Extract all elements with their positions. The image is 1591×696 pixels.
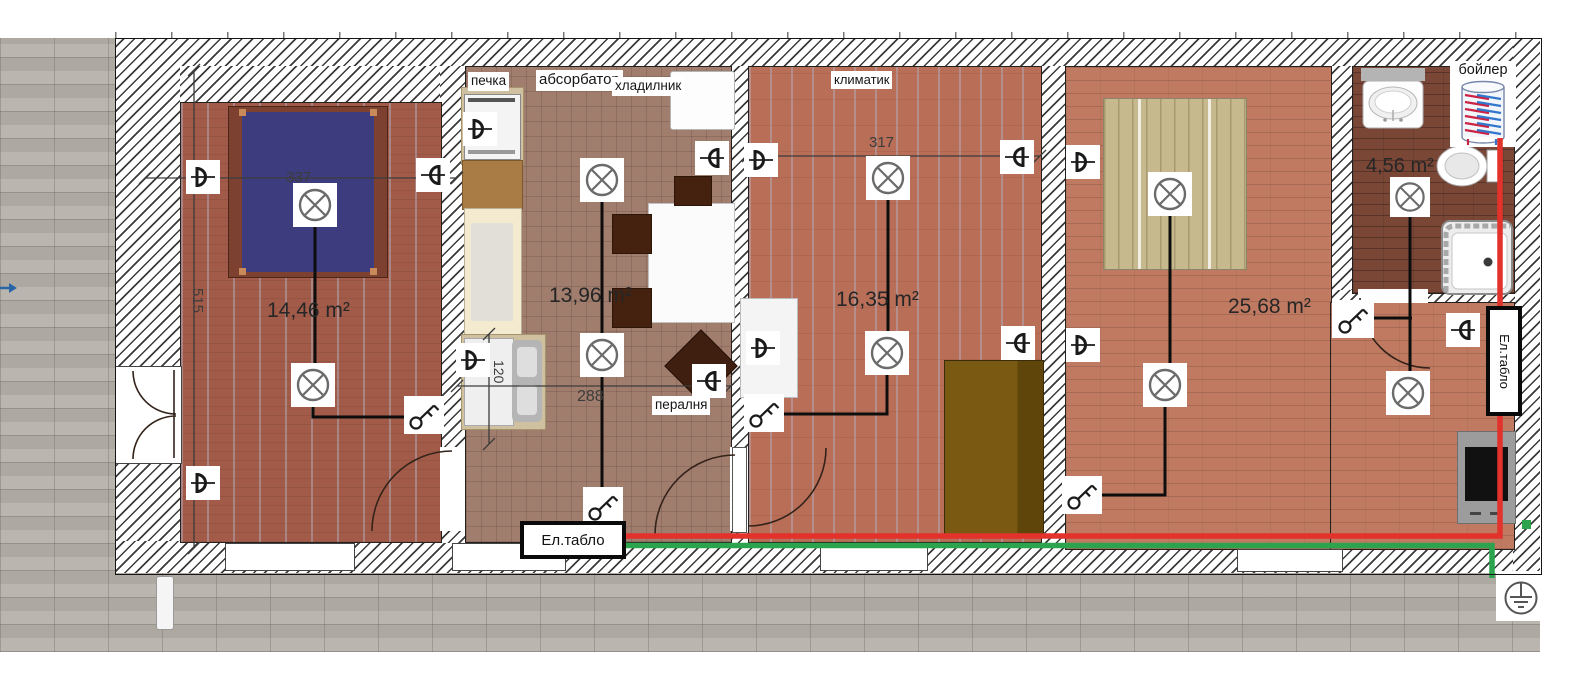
switch-icon[interactable] [583, 487, 623, 525]
window-bedroom[interactable] [225, 543, 355, 571]
kitchen-sink-basins[interactable] [512, 340, 542, 422]
kitchen-table[interactable] [648, 203, 735, 323]
earth-node-dot [1522, 520, 1531, 529]
electrical-panel-kitchen[interactable]: Ел.табло [520, 521, 626, 559]
ceiling-light-icon[interactable] [865, 331, 909, 375]
entrance-door[interactable] [115, 366, 182, 464]
dim-house-depth: 515 [189, 288, 206, 313]
wall-light-icon[interactable] [746, 331, 780, 365]
outdoor-radiator [156, 576, 174, 630]
washer-label[interactable]: пералня [652, 396, 710, 415]
dim-living-width: 317 [869, 134, 894, 151]
wardrobe[interactable] [944, 360, 1044, 535]
dim-counter-depth: 120 [491, 360, 507, 383]
wall-light-icon[interactable] [744, 143, 778, 177]
panel-label: Ел.табло [541, 532, 604, 549]
window-living[interactable] [820, 543, 928, 571]
area-living: 16,35 m² [836, 288, 919, 312]
wall-top [115, 38, 1540, 68]
wall-light-icon[interactable] [695, 141, 729, 175]
boiler-label: бойлер [1458, 61, 1507, 79]
bathroom-sink[interactable] [1361, 68, 1425, 130]
shower[interactable] [1441, 220, 1513, 295]
stove-label[interactable]: печка [468, 72, 509, 91]
switch-icon[interactable] [1332, 300, 1374, 338]
hood-label[interactable]: абсорбатор [536, 70, 623, 91]
door-leaf-kitchen[interactable] [732, 447, 747, 533]
dim-kitchen-width: 288 [577, 388, 604, 406]
wall-stub-1 [440, 531, 465, 543]
chair[interactable] [612, 214, 652, 254]
wall-light-icon[interactable] [186, 160, 220, 194]
floor-plan-canvas[interactable]: бойлер [0, 0, 1591, 696]
kitchen-cabinet[interactable] [462, 160, 523, 210]
area-bedroom: 14,46 m² [267, 299, 350, 323]
wall-light-icon[interactable] [186, 466, 220, 500]
boiler-icon [1455, 79, 1511, 145]
ceiling-light-icon[interactable] [580, 158, 624, 202]
ground-electrode[interactable] [1496, 571, 1546, 621]
ceiling-light-icon[interactable] [1386, 371, 1430, 415]
fridge-label[interactable]: хладилник [612, 77, 684, 96]
ceiling-light-icon[interactable] [580, 333, 624, 377]
window-big-room[interactable] [1237, 549, 1343, 572]
switch-icon[interactable] [404, 396, 444, 434]
wall-light-icon[interactable] [692, 364, 726, 398]
switch-icon[interactable] [1062, 476, 1102, 514]
boiler[interactable]: бойлер [1450, 61, 1516, 147]
wall-light-icon[interactable] [1066, 145, 1100, 179]
wall-light-icon[interactable] [1446, 313, 1480, 347]
area-kitchen: 13,96 m² [549, 284, 632, 308]
ceiling-light-icon[interactable] [1143, 363, 1187, 407]
chair[interactable] [674, 176, 712, 206]
panel-label: Ел.табло [1497, 334, 1512, 389]
toilet[interactable] [1435, 143, 1503, 189]
wall-light-icon[interactable] [463, 112, 497, 146]
fireplace[interactable] [1457, 431, 1516, 524]
kitchen-counter[interactable] [464, 208, 522, 336]
area-bathroom: 4,56 m² [1366, 155, 1434, 178]
area-big-room: 25,68 m² [1228, 295, 1311, 319]
door-opening-bedroom[interactable] [440, 447, 465, 531]
ceiling-light-icon[interactable] [293, 183, 337, 227]
wall-bathroom-left [1330, 66, 1352, 292]
switch-icon[interactable] [744, 394, 784, 432]
ceiling-light-icon[interactable] [866, 156, 910, 200]
ceiling-light-icon[interactable] [291, 363, 335, 407]
electrical-panel-right[interactable]: Ел.табло [1486, 306, 1522, 416]
wall-light-icon[interactable] [456, 343, 490, 377]
wall-light-icon[interactable] [416, 158, 450, 192]
wall-light-icon[interactable] [1000, 140, 1034, 174]
ground-icon [1496, 571, 1546, 621]
ceiling-light-icon[interactable] [1390, 177, 1430, 217]
dim-bedroom-width: 337 [286, 169, 311, 186]
wall-light-icon[interactable] [1001, 326, 1035, 360]
ceiling-light-icon[interactable] [1148, 172, 1192, 216]
direction-arrow-icon [0, 281, 18, 295]
wall-light-icon[interactable] [1066, 328, 1100, 362]
ac-label[interactable]: климатик [831, 71, 892, 89]
wall-left [115, 38, 180, 573]
